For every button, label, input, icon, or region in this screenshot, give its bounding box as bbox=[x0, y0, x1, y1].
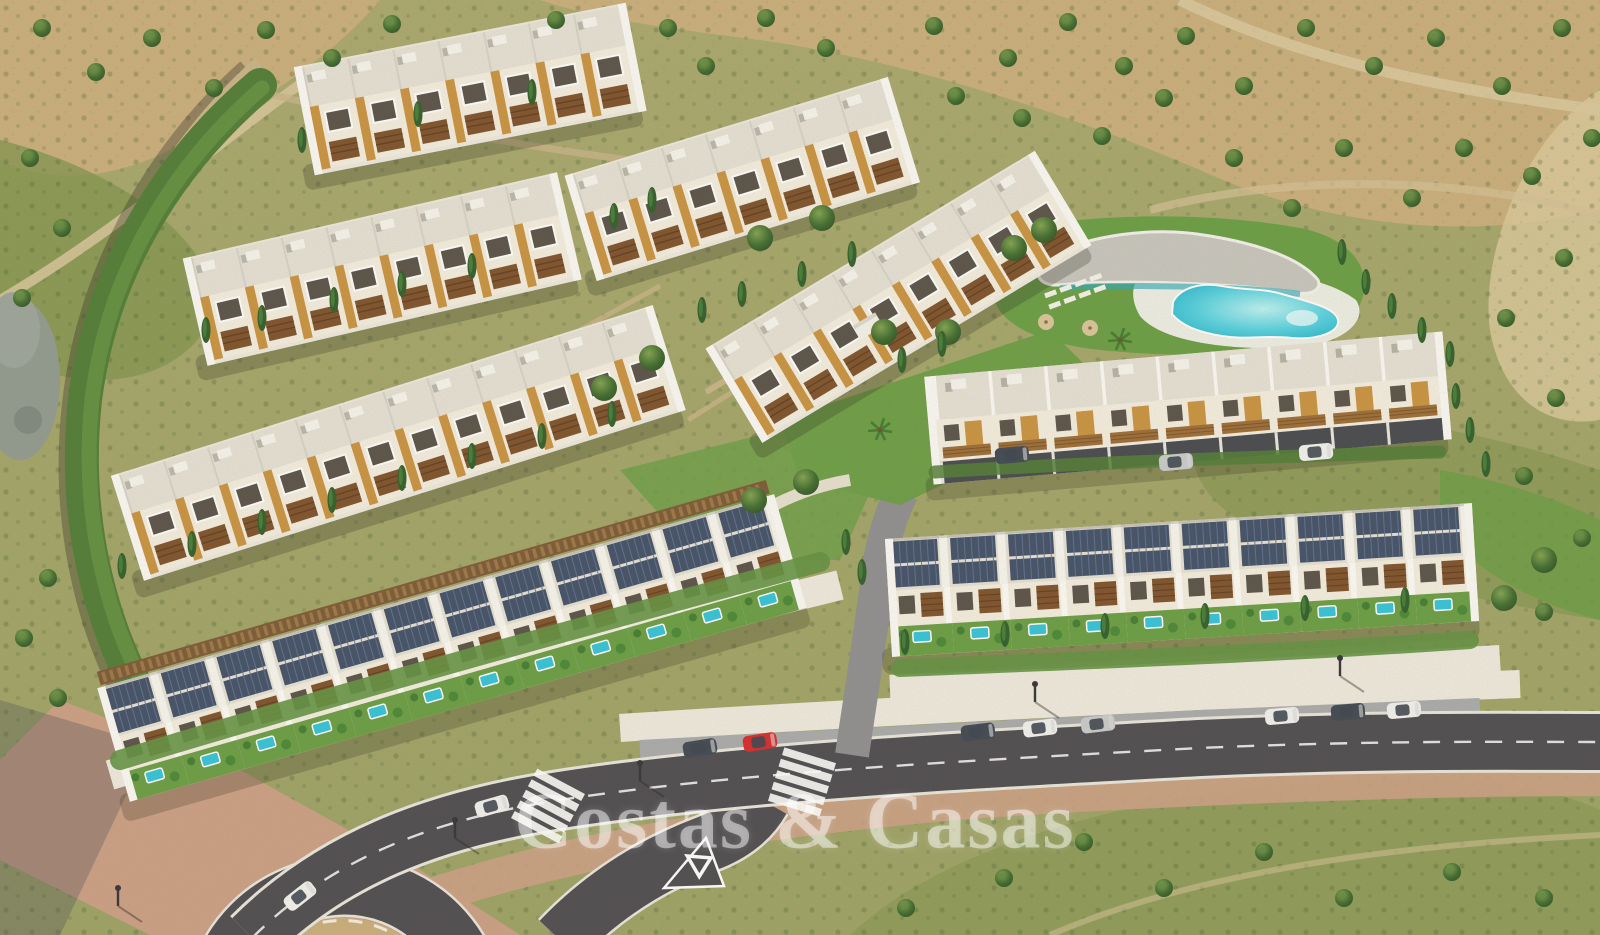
warm-tint-overlay bbox=[0, 0, 1600, 935]
scene-canvas bbox=[0, 0, 1600, 935]
aerial-render-photo: Costas & Casas bbox=[0, 0, 1600, 935]
